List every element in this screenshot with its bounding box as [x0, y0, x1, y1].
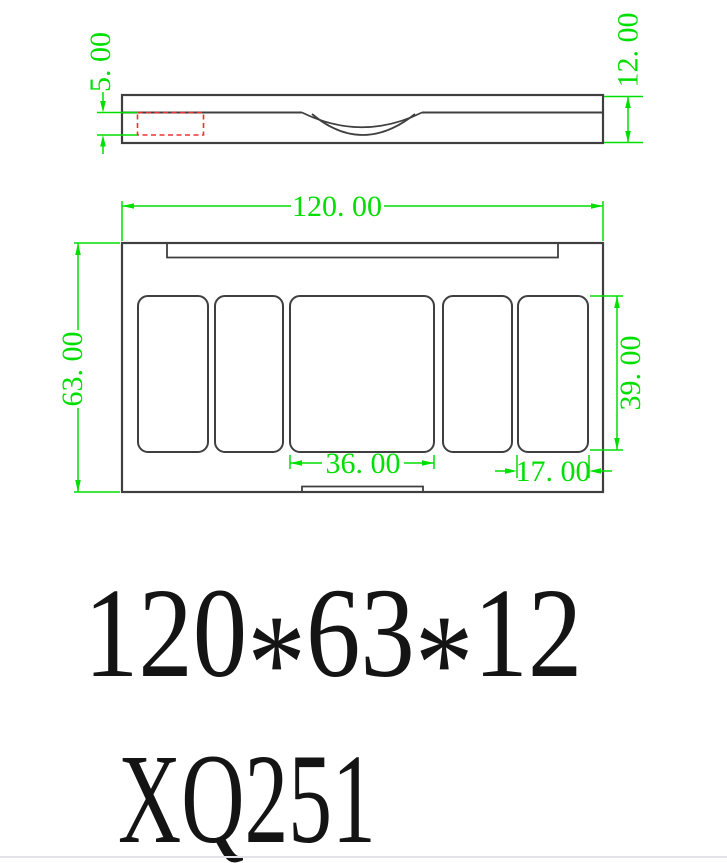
arrow-down-icon: [75, 480, 81, 492]
dim-overall-width: 120. 00: [122, 190, 603, 241]
pan-3-center: [290, 296, 434, 452]
arrow-down-icon: [100, 101, 106, 113]
arrow-left-icon: [589, 468, 601, 474]
dim-label-total-thickness: 12. 00: [612, 13, 645, 88]
size-depth-value: 12: [474, 562, 583, 704]
dim-label-center-pan-width: 36. 00: [326, 447, 401, 480]
arrow-right-icon: [591, 203, 603, 209]
hinge-slot: [167, 244, 558, 258]
dim-total-thickness: 12. 00: [604, 13, 645, 143]
dim-side-pan-width: 17. 00: [495, 455, 612, 488]
pan-1: [138, 296, 208, 452]
dim-pan-height: 39. 00: [590, 296, 647, 450]
size-spec-text: 120*63*12: [84, 569, 582, 732]
arrow-up-icon: [75, 243, 81, 255]
arrow-down-icon: [625, 131, 631, 143]
dim-label-overall-width: 120. 00: [292, 190, 382, 223]
model-code-text: XQ251: [118, 735, 376, 863]
pan-5: [518, 296, 588, 452]
dim-label-pan-height: 39. 00: [614, 336, 647, 411]
arrow-up-icon: [614, 296, 620, 308]
cad-drawing-page: 5. 00 12. 00: [0, 0, 727, 863]
pan-2: [215, 296, 283, 452]
arrow-right-icon: [422, 460, 434, 466]
side-view: [122, 95, 603, 143]
pan-4: [443, 296, 512, 452]
arrow-down-icon: [614, 438, 620, 450]
dim-label-overall-height: 63. 00: [56, 332, 89, 407]
dim-lid-recess-depth: 5. 00: [84, 32, 138, 154]
dim-label-lid-recess-depth: 5. 00: [84, 32, 117, 92]
dim-overall-height: 63. 00: [56, 243, 120, 492]
pan-recess-highlight-dashed: [138, 113, 204, 136]
thumb-notch-inner-arc: [312, 114, 415, 135]
size-height-value: 63: [306, 562, 415, 704]
front-latch-notch: [302, 487, 423, 492]
asterisk-separator: *: [247, 586, 306, 739]
arrow-left-icon: [290, 460, 302, 466]
arrow-up-icon: [100, 135, 106, 147]
arrow-left-icon: [122, 203, 134, 209]
asterisk-separator: *: [415, 586, 474, 739]
page-bottom-divider: [0, 856, 727, 858]
size-width-value: 120: [84, 562, 247, 704]
arrow-up-icon: [625, 97, 631, 109]
dim-label-side-pan-width: 17. 00: [516, 455, 591, 488]
